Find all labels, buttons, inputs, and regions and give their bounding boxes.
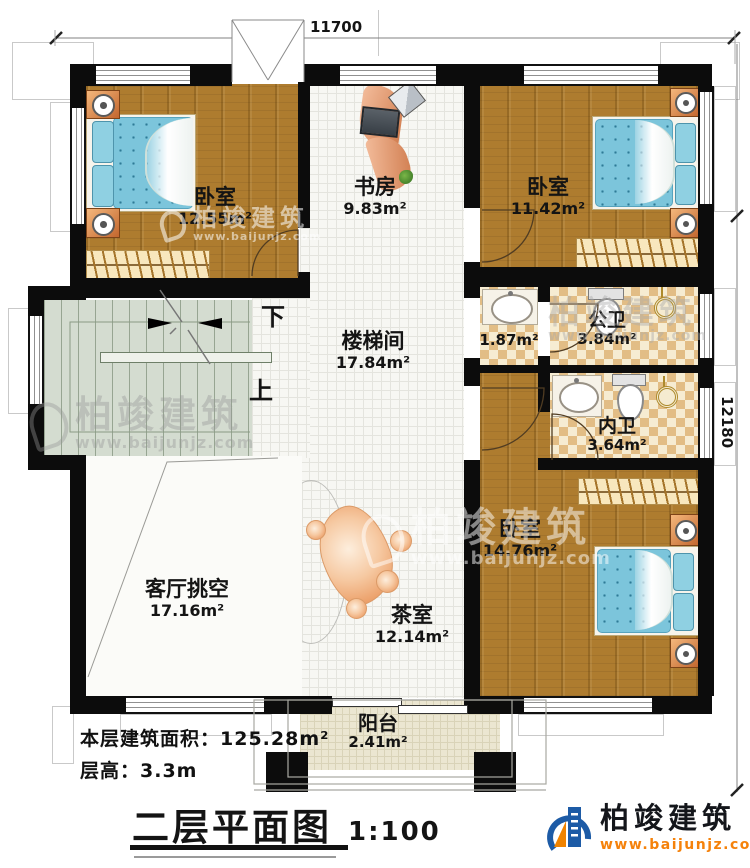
room-area: 1.87m² bbox=[478, 332, 540, 349]
room-label-study: 书房 9.83m² bbox=[315, 176, 435, 217]
room-area: 3.64m² bbox=[572, 437, 662, 454]
room-name: 楼梯间 bbox=[315, 330, 431, 354]
room-area: 17.16m² bbox=[122, 602, 252, 620]
room-name: 内卫 bbox=[572, 416, 662, 437]
room-label-bedroom-top-left: 卧室 12.55m² bbox=[155, 186, 275, 227]
floor-height-label: 层高： bbox=[80, 760, 140, 782]
room-name: 卧室 bbox=[155, 186, 275, 210]
brand-logo: 柏竣建筑 www.baijunjz.com bbox=[544, 799, 750, 857]
stair-down-label: 下 bbox=[258, 304, 288, 331]
void-boundary-lines bbox=[88, 458, 278, 677]
title-underline-thick bbox=[130, 845, 348, 850]
building-swoosh-icon bbox=[544, 799, 592, 857]
drawing-title: 二层平面图 bbox=[132, 806, 332, 849]
room-name: 书房 bbox=[315, 176, 435, 200]
room-name: 阳台 bbox=[322, 712, 434, 734]
room-area: 12.14m² bbox=[352, 628, 472, 646]
room-name: 卧室 bbox=[490, 176, 606, 200]
bay-triangle bbox=[232, 20, 304, 82]
room-area: 9.83m² bbox=[315, 200, 435, 218]
floor-plan-canvas: 卧室 12.55m² 书房 9.83m² 卧室 11.42m² 楼梯间 17.8… bbox=[0, 0, 750, 868]
floor-area-value: 125.28m² bbox=[220, 728, 329, 750]
room-area: 3.84m² bbox=[562, 331, 652, 348]
dimension-right-value: 12180 bbox=[718, 396, 736, 448]
room-label-vanity: 1.87m² bbox=[478, 332, 540, 349]
drawing-title-block: 二层平面图1:100 bbox=[132, 797, 441, 851]
room-label-tea-room: 茶室 12.14m² bbox=[352, 604, 472, 645]
stair-symbols bbox=[70, 290, 250, 432]
floor-area-note: 本层建筑面积：125.28m² bbox=[80, 724, 329, 751]
room-name: 客厅挑空 bbox=[122, 578, 252, 602]
room-label-bedroom-bottom-right: 卧室 14.76m² bbox=[462, 518, 578, 559]
floor-height-value: 3.3m bbox=[140, 760, 197, 782]
room-area: 14.76m² bbox=[462, 542, 578, 560]
room-label-living-void: 客厅挑空 17.16m² bbox=[122, 578, 252, 619]
drawing-scale: 1:100 bbox=[348, 817, 441, 847]
dimension-line-top bbox=[50, 30, 740, 64]
brand-url: www.baijunjz.com bbox=[600, 837, 750, 853]
stair-up-label: 上 bbox=[246, 378, 276, 405]
room-area: 12.55m² bbox=[155, 210, 275, 228]
room-label-balcony: 阳台 2.41m² bbox=[322, 712, 434, 751]
dimension-top-value: 11700 bbox=[310, 18, 362, 36]
room-label-public-bath: 公卫 3.84m² bbox=[562, 310, 652, 348]
title-underline-thin bbox=[134, 856, 336, 858]
room-name: 茶室 bbox=[352, 604, 472, 628]
floor-height-note: 层高：3.3m bbox=[80, 756, 197, 783]
room-label-bedroom-top-right: 卧室 11.42m² bbox=[490, 176, 606, 217]
room-label-private-bath: 内卫 3.64m² bbox=[572, 416, 662, 454]
brand-name: 柏竣建筑 bbox=[600, 804, 750, 833]
floor-area-label: 本层建筑面积： bbox=[80, 728, 220, 750]
room-area: 2.41m² bbox=[322, 734, 434, 751]
room-area: 11.42m² bbox=[490, 200, 606, 218]
room-name: 卧室 bbox=[462, 518, 578, 542]
room-area: 17.84m² bbox=[315, 354, 431, 372]
room-label-stair-hall: 楼梯间 17.84m² bbox=[315, 330, 431, 371]
room-name: 公卫 bbox=[562, 310, 652, 331]
